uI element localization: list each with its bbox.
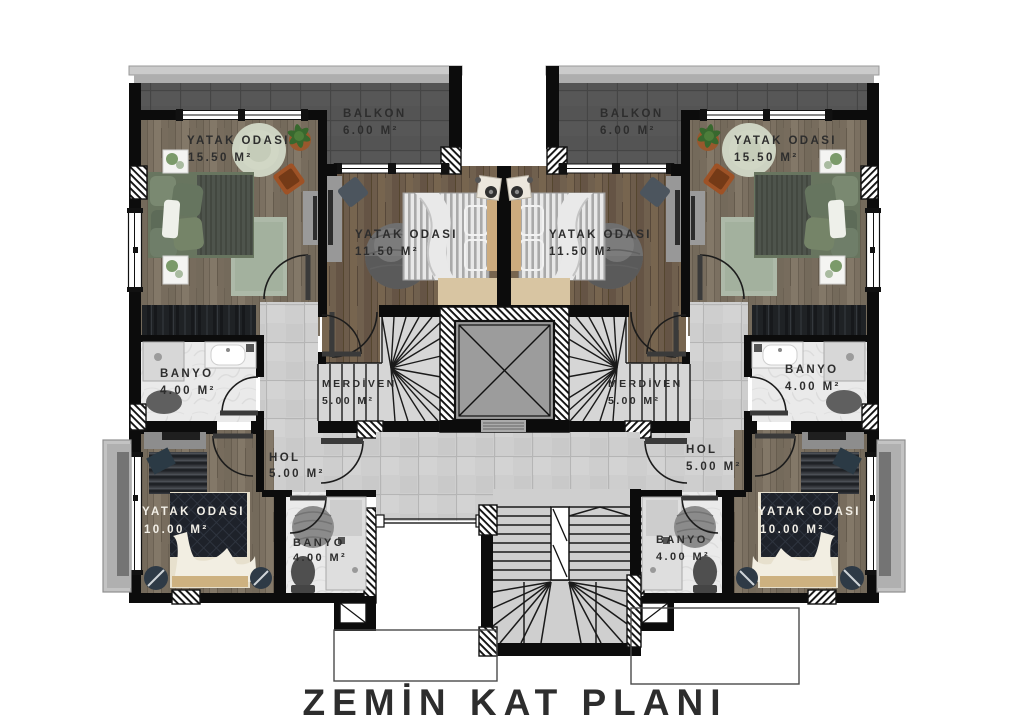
svg-text:4.00 M²: 4.00 M² (656, 551, 710, 563)
svg-text:10.00 M²: 10.00 M² (760, 524, 825, 536)
svg-text:YATAK ODASI: YATAK ODASI (187, 135, 290, 147)
svg-text:BANYO: BANYO (785, 364, 839, 376)
svg-text:ZEMİN KAT PLANI: ZEMİN KAT PLANI (303, 682, 728, 723)
svg-text:BANYO: BANYO (160, 368, 214, 380)
svg-text:BALKON: BALKON (343, 108, 407, 120)
svg-text:15.50 M²: 15.50 M² (188, 152, 253, 164)
svg-text:4.00 M²: 4.00 M² (160, 385, 216, 397)
svg-text:5.00 M²: 5.00 M² (686, 461, 742, 473)
svg-text:MERDİVEN: MERDİVEN (322, 377, 397, 390)
svg-text:4.00 M²: 4.00 M² (785, 381, 841, 393)
svg-text:15.50 M²: 15.50 M² (734, 152, 799, 164)
svg-text:YATAK ODASI: YATAK ODASI (549, 229, 652, 241)
svg-text:5.00 M²: 5.00 M² (608, 395, 660, 407)
svg-text:MERDİVEN: MERDİVEN (608, 377, 683, 390)
svg-text:5.00 M²: 5.00 M² (322, 395, 374, 407)
svg-text:6.00 M²: 6.00 M² (343, 125, 399, 137)
svg-text:6.00 M²: 6.00 M² (600, 125, 656, 137)
svg-text:4.00 M²: 4.00 M² (293, 552, 347, 564)
svg-text:BANYO: BANYO (293, 537, 345, 549)
svg-text:11.50 M²: 11.50 M² (355, 246, 419, 258)
svg-text:YATAK ODASI: YATAK ODASI (142, 506, 245, 518)
svg-text:BANYO: BANYO (656, 534, 708, 546)
svg-text:HOL: HOL (686, 444, 717, 456)
svg-text:5.00 M²: 5.00 M² (269, 468, 325, 480)
svg-text:HOL: HOL (269, 452, 300, 464)
svg-text:10.00 M²: 10.00 M² (144, 524, 209, 536)
svg-text:11.50 M²: 11.50 M² (549, 246, 613, 258)
svg-text:YATAK ODASI: YATAK ODASI (758, 506, 861, 518)
svg-text:BALKON: BALKON (600, 108, 664, 120)
svg-text:YATAK ODASI: YATAK ODASI (355, 229, 458, 241)
svg-text:YATAK ODASI: YATAK ODASI (734, 135, 837, 147)
